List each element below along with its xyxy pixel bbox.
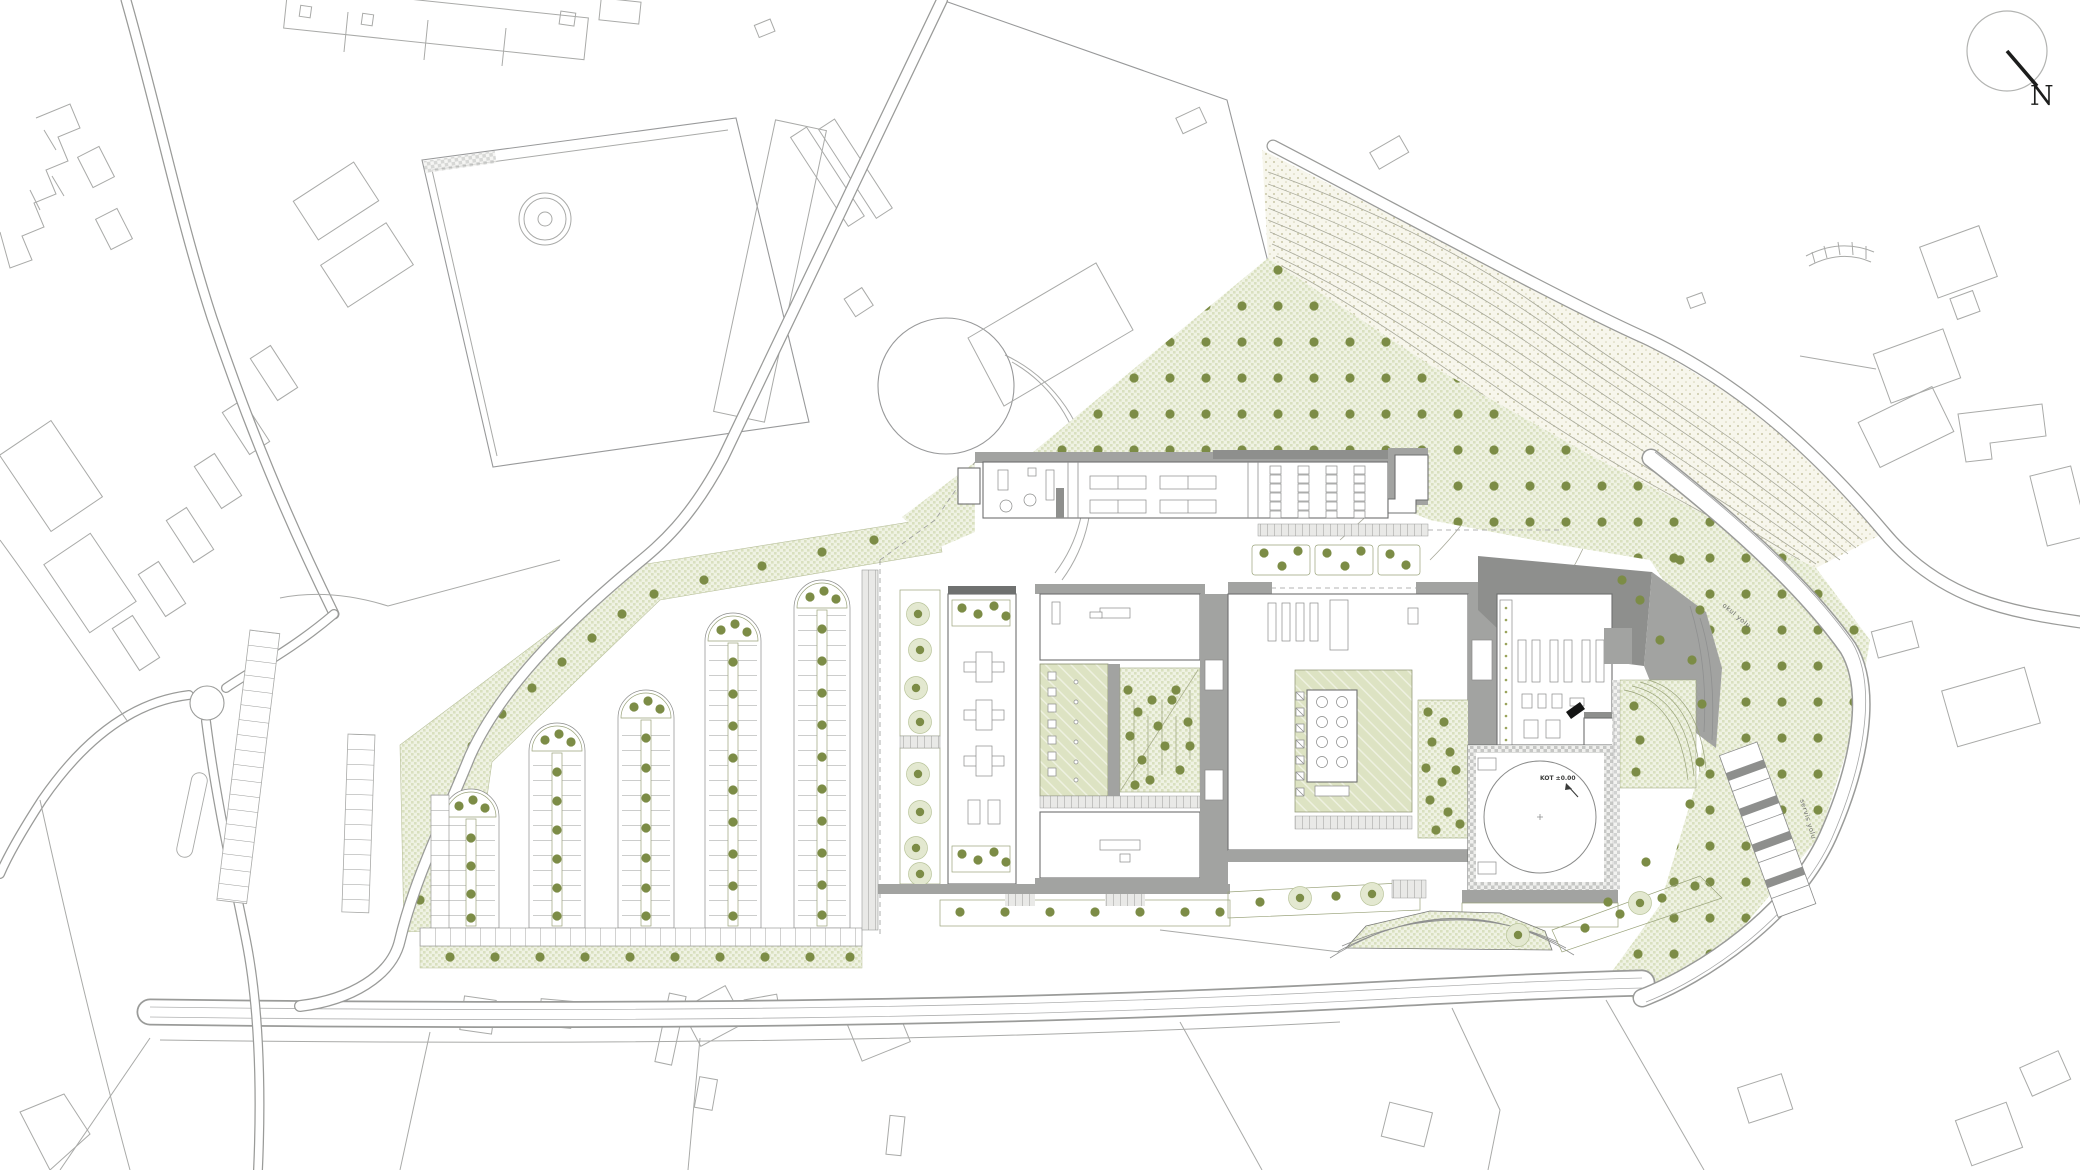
north-planters (1252, 545, 1420, 575)
fountain-outer (519, 193, 571, 245)
site-plan-drawing: KOT ±0.00 (0, 0, 2080, 1170)
parking-row (705, 613, 761, 928)
road-northwest (0, 0, 334, 1170)
parking-row (443, 789, 499, 928)
east-terraces (1620, 680, 1706, 788)
hall-elevation-label: KOT ±0.00 (1540, 775, 1576, 782)
context-left-buildings (0, 146, 413, 670)
north-arrow: N (1967, 11, 2054, 112)
cloister-courtyard (1295, 670, 1412, 812)
east-courtyard (1418, 700, 1472, 838)
parking-connector-lane (420, 928, 862, 946)
north-label: N (2030, 81, 2054, 112)
pedestrian-spine (862, 570, 878, 930)
garden-courtyard (1120, 668, 1200, 792)
parking-row (618, 690, 674, 928)
median-island (175, 771, 209, 858)
parking-row (529, 723, 585, 928)
site-plan-canvas: KOT ±0.00 (0, 0, 2080, 1170)
roundabout (190, 686, 224, 720)
parking-rows (443, 580, 850, 928)
west-block (900, 584, 1205, 890)
center-block (1228, 582, 1480, 862)
context-top-band (284, 0, 775, 66)
context-zigzag-building (0, 104, 80, 268)
block-link-west (1200, 594, 1228, 884)
parking-walk-strip (431, 795, 449, 928)
road-south (150, 978, 1642, 1042)
sports-hall: KOT ±0.00 (1468, 745, 1612, 890)
south-green-strip (420, 946, 862, 968)
parking-row (794, 580, 850, 928)
north-strip-building (958, 448, 1428, 536)
